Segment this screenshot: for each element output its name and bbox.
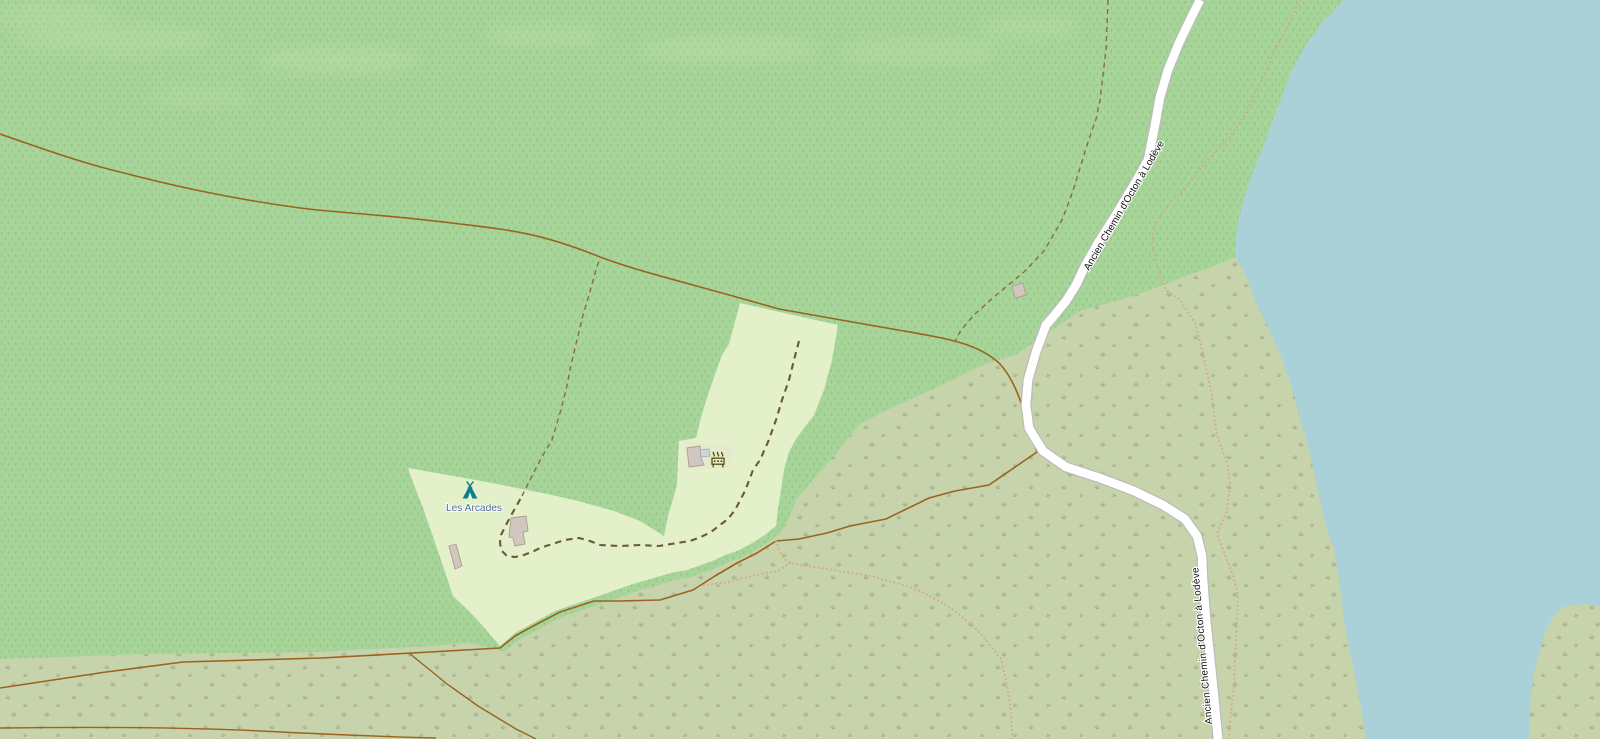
svg-text:Les Arcades: Les Arcades [446,503,502,514]
